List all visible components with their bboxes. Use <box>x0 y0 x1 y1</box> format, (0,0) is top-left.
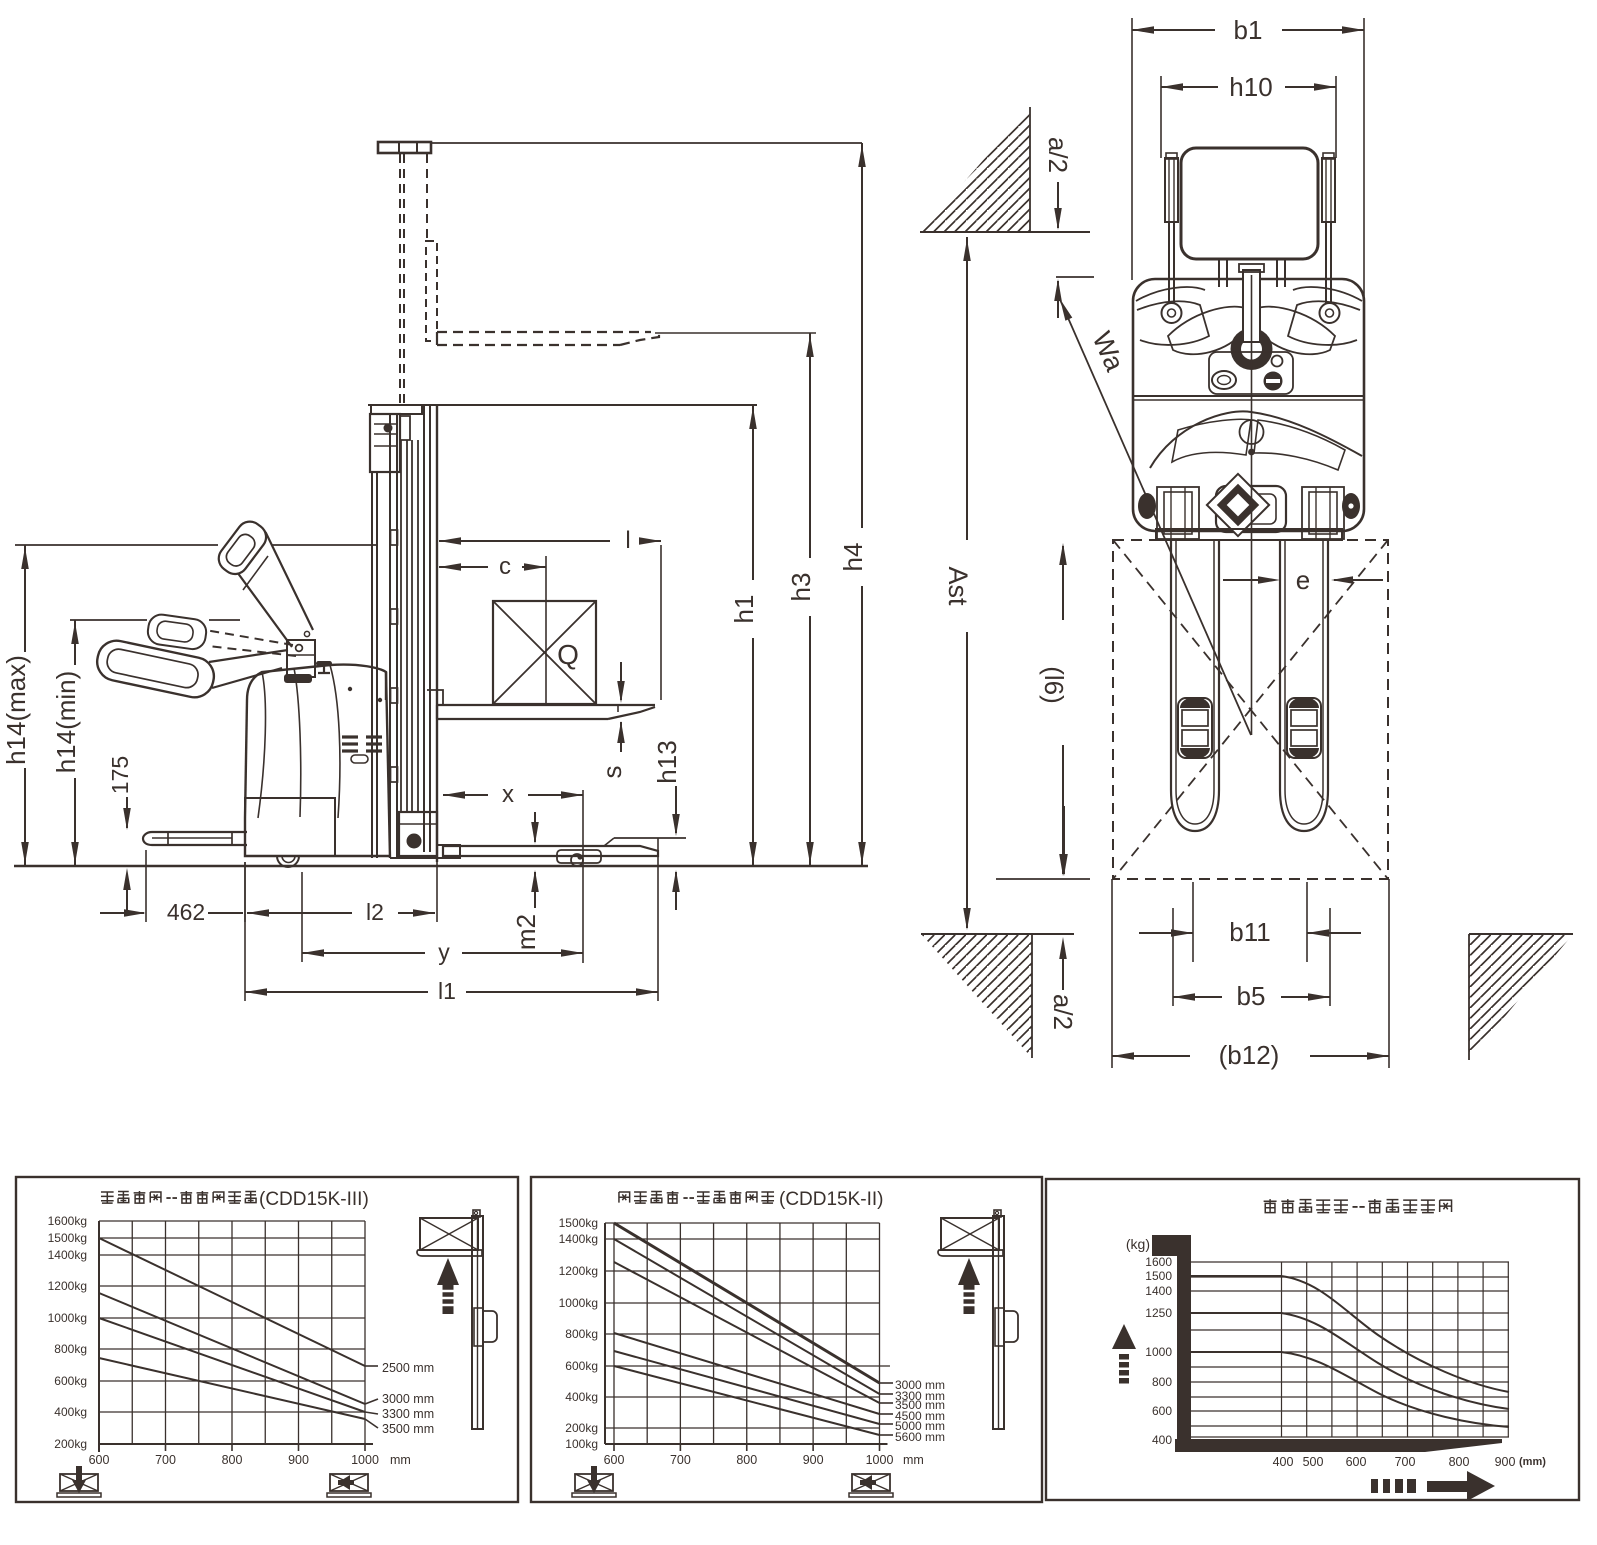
svg-text:c: c <box>499 553 511 580</box>
svg-text:700: 700 <box>670 1453 691 1467</box>
svg-text:1400kg: 1400kg <box>48 1248 87 1262</box>
svg-text:175: 175 <box>107 756 133 794</box>
svg-text:h14(max): h14(max) <box>1 655 31 765</box>
svg-text:800kg: 800kg <box>565 1327 598 1341</box>
svg-text:b11: b11 <box>1229 917 1270 947</box>
svg-text:(b12): (b12) <box>1219 1040 1280 1070</box>
svg-text:700: 700 <box>155 1453 176 1467</box>
svg-text:462: 462 <box>167 899 205 925</box>
svg-text:100kg: 100kg <box>565 1437 598 1451</box>
svg-text:y: y <box>438 939 450 965</box>
svg-text:1600: 1600 <box>1145 1255 1172 1269</box>
svg-text:600kg: 600kg <box>54 1374 87 1388</box>
svg-text:(kg): (kg) <box>1126 1236 1150 1252</box>
svg-text:m2: m2 <box>511 914 541 950</box>
svg-text:400: 400 <box>1273 1455 1294 1469</box>
svg-text:(CDD15K-II): (CDD15K-II) <box>779 1189 884 1210</box>
svg-text:Q: Q <box>557 639 579 670</box>
svg-text:800kg: 800kg <box>54 1342 87 1356</box>
svg-text:h13: h13 <box>652 740 682 783</box>
svg-text:a/2: a/2 <box>1043 137 1073 173</box>
svg-text:1500kg: 1500kg <box>559 1216 598 1230</box>
svg-text:1500: 1500 <box>1145 1269 1172 1283</box>
svg-text:1600kg: 1600kg <box>48 1214 87 1228</box>
svg-text:800: 800 <box>222 1453 243 1467</box>
svg-text:1500kg: 1500kg <box>48 1231 87 1245</box>
svg-text:1000kg: 1000kg <box>48 1311 87 1325</box>
svg-text:800: 800 <box>736 1453 757 1467</box>
svg-text:h4: h4 <box>838 543 868 572</box>
svg-text:1200kg: 1200kg <box>559 1264 598 1278</box>
svg-text:(l6): (l6) <box>1039 666 1069 704</box>
svg-text:b5: b5 <box>1237 981 1266 1011</box>
svg-text:900: 900 <box>803 1453 824 1467</box>
svg-text:400kg: 400kg <box>565 1390 598 1404</box>
svg-text:400: 400 <box>1152 1433 1172 1447</box>
svg-text:1000: 1000 <box>351 1453 379 1467</box>
svg-text:x: x <box>502 781 514 808</box>
svg-text:700: 700 <box>1395 1455 1416 1469</box>
svg-text:600kg: 600kg <box>565 1359 598 1373</box>
svg-text:1200kg: 1200kg <box>48 1279 87 1293</box>
svg-text:Ast: Ast <box>943 566 973 606</box>
svg-text:600: 600 <box>1152 1404 1172 1418</box>
svg-text:800: 800 <box>1152 1375 1172 1389</box>
svg-text:200kg: 200kg <box>54 1437 87 1451</box>
svg-text:900: 900 <box>1495 1455 1516 1469</box>
svg-text:h14(min): h14(min) <box>51 671 81 774</box>
svg-text:l1: l1 <box>438 978 456 1004</box>
svg-text:(CDD15K-III): (CDD15K-III) <box>259 1189 369 1210</box>
svg-text:s: s <box>597 766 627 779</box>
svg-text:900: 900 <box>288 1453 309 1467</box>
svg-text:600: 600 <box>89 1453 110 1467</box>
svg-text:1000: 1000 <box>1145 1345 1172 1359</box>
svg-text:2500 mm: 2500 mm <box>382 1361 434 1375</box>
svg-text:500: 500 <box>1303 1455 1324 1469</box>
svg-text:200kg: 200kg <box>565 1421 598 1435</box>
svg-text:800: 800 <box>1449 1455 1470 1469</box>
svg-text:h3: h3 <box>786 573 816 602</box>
svg-text:5600 mm: 5600 mm <box>895 1430 945 1444</box>
svg-text:3000 mm: 3000 mm <box>382 1392 434 1406</box>
svg-text:1400kg: 1400kg <box>559 1232 598 1246</box>
svg-text:h1: h1 <box>729 595 759 624</box>
svg-text:a/2: a/2 <box>1048 994 1078 1030</box>
svg-text:mm: mm <box>903 1453 924 1467</box>
svg-text:1400: 1400 <box>1145 1284 1172 1298</box>
svg-text:h10: h10 <box>1229 72 1272 102</box>
svg-text:1250: 1250 <box>1145 1306 1172 1320</box>
svg-text:(mm): (mm) <box>1519 1456 1546 1468</box>
svg-text:600: 600 <box>604 1453 625 1467</box>
svg-text:1000kg: 1000kg <box>559 1296 598 1310</box>
svg-text:b1: b1 <box>1234 15 1263 45</box>
svg-text:mm: mm <box>390 1453 411 1467</box>
svg-text:l2: l2 <box>366 899 384 925</box>
svg-text:3300 mm: 3300 mm <box>382 1407 434 1421</box>
svg-text:600: 600 <box>1346 1455 1367 1469</box>
svg-text:e: e <box>1296 565 1310 595</box>
svg-text:l: l <box>625 527 630 554</box>
svg-text:400kg: 400kg <box>54 1405 87 1419</box>
svg-text:3500 mm: 3500 mm <box>382 1422 434 1436</box>
svg-text:1000: 1000 <box>866 1453 894 1467</box>
